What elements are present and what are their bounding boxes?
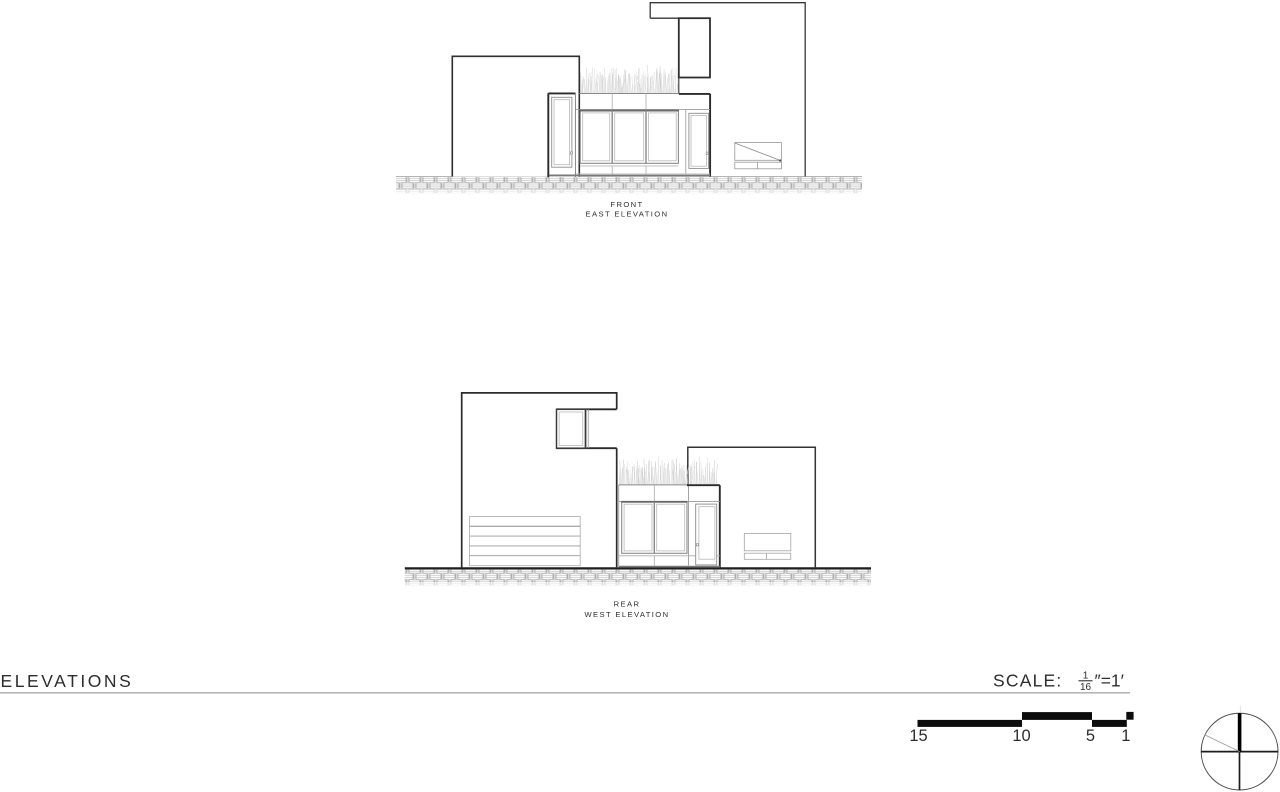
svg-text:FRONT: FRONT <box>610 200 643 209</box>
svg-text:WEST ELEVATION: WEST ELEVATION <box>584 610 669 619</box>
svg-text:EAST ELEVATION: EAST ELEVATION <box>586 210 669 219</box>
svg-text:SCALE:: SCALE: <box>993 671 1062 691</box>
svg-text:5: 5 <box>1086 727 1095 745</box>
svg-text:REAR: REAR <box>614 599 641 608</box>
svg-text:16: 16 <box>1080 682 1092 693</box>
svg-text:15: 15 <box>909 727 927 745</box>
svg-text:ELEVATIONS: ELEVATIONS <box>1 671 134 691</box>
svg-text:1: 1 <box>1083 671 1089 682</box>
svg-text:10: 10 <box>1012 727 1030 745</box>
svg-text:″=1′: ″=1′ <box>1095 671 1124 691</box>
svg-text:1: 1 <box>1121 727 1130 745</box>
